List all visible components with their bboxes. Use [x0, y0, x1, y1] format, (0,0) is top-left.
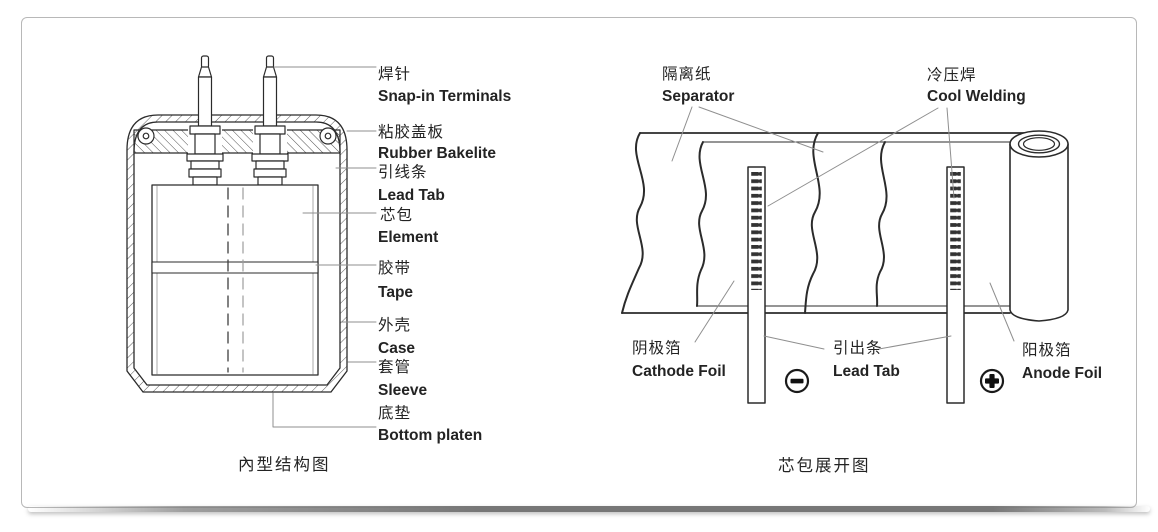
label-sleeve-en: Sleeve — [378, 382, 428, 399]
leader-bottom-platen — [273, 393, 376, 427]
label-anode-foil-en: Anode Foil — [1022, 365, 1102, 382]
label-anode-foil-zh: 阳极箔 — [1022, 341, 1072, 359]
lead-tab-cathode — [748, 167, 765, 403]
label-rubber-bakelite-en: Rubber Bakelite — [378, 145, 496, 162]
right-caption: 芯包展开图 — [778, 456, 871, 475]
leader-cathode-foil — [695, 281, 734, 342]
label-case-en: Case — [378, 340, 415, 357]
element-expanded-diagram: 隔离纸 Separator 冷压焊 Cool Welding 阴极箔 Catho… — [622, 65, 1102, 475]
torn-edge-anode-foil — [877, 142, 887, 306]
lead-tab-anode — [947, 167, 964, 403]
label-bottom-platen-zh: 底垫 — [378, 404, 411, 422]
label-element-en: Element — [378, 229, 438, 246]
roll-body — [1010, 144, 1068, 321]
leader-lead-tab-left — [764, 336, 824, 349]
torn-edge-cathode-foil — [697, 142, 706, 306]
label-case-zh: 外壳 — [378, 316, 411, 334]
label-element-zh: 芯包 — [380, 206, 413, 224]
label-cool-welding-en: Cool Welding — [927, 88, 1026, 105]
plus-in-circle-icon — [981, 370, 1003, 392]
torn-edge-separator-left — [622, 133, 644, 313]
left-caption: 內型结构图 — [238, 455, 331, 474]
crimp-curl-right — [320, 128, 336, 144]
label-lead-tab-en: Lead Tab — [378, 187, 445, 204]
label-separator-en: Separator — [662, 88, 734, 105]
element-body — [152, 185, 318, 375]
minus-in-circle-icon — [786, 370, 808, 392]
label-separator-zh: 隔离纸 — [662, 65, 712, 83]
label-tape-en: Tape — [378, 284, 413, 301]
diagram-canvas: 焊针 Snap-in Terminals 粘胶盖板 Rubber Bakelit… — [0, 0, 1158, 532]
leader-separator-1 — [672, 107, 692, 161]
left-label-column: 焊针 Snap-in Terminals 粘胶盖板 Rubber Bakelit… — [378, 65, 511, 444]
crimp-curl-left — [138, 128, 154, 144]
label-lead-tab-out-en: Lead Tab — [833, 363, 900, 380]
label-cathode-foil-en: Cathode Foil — [632, 363, 726, 380]
leader-separator-2 — [699, 107, 823, 152]
label-snap-in-terminals-zh: 焊针 — [378, 65, 411, 83]
label-bottom-platen-en: Bottom platen — [378, 427, 482, 444]
label-cool-welding-zh: 冷压焊 — [927, 66, 977, 84]
label-sleeve-zh: 套管 — [378, 358, 411, 376]
label-snap-in-terminals-en: Snap-in Terminals — [378, 88, 511, 105]
page: { "colors": { "line": "#2b2b2b", "leader… — [0, 0, 1158, 532]
tape-band — [152, 262, 318, 273]
leader-cool-welding-1 — [768, 108, 938, 206]
label-cathode-foil-zh: 阴极箔 — [632, 339, 682, 357]
wound-roll — [1010, 131, 1068, 321]
torn-edge-separator-mid — [805, 133, 820, 313]
label-tape-zh: 胶带 — [378, 259, 411, 277]
weld-marks-cathode — [751, 172, 762, 290]
rubber-bakelite-plate — [134, 130, 340, 153]
label-lead-tab-zh: 引线条 — [378, 163, 428, 181]
label-lead-tab-out-zh: 引出条 — [833, 339, 883, 357]
label-rubber-bakelite-zh: 粘胶盖板 — [378, 123, 444, 141]
leader-lead-tab-right — [879, 336, 951, 349]
weld-marks-anode — [950, 172, 961, 290]
capacitor-structure-diagram: 焊针 Snap-in Terminals 粘胶盖板 Rubber Bakelit… — [127, 56, 511, 474]
